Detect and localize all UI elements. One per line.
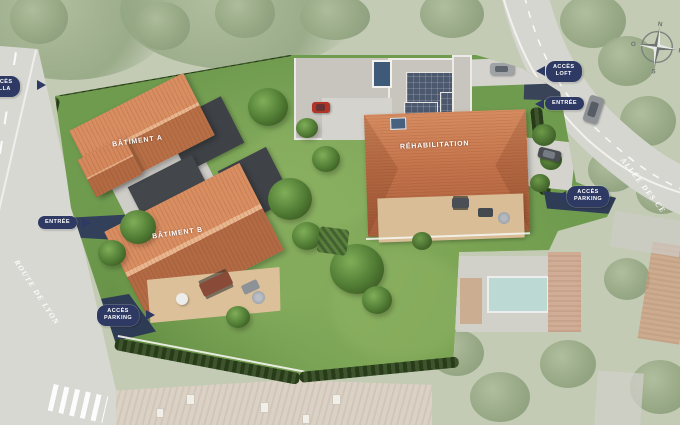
arrow-left-icon — [535, 99, 544, 109]
badge-text: VILLA — [0, 86, 13, 93]
badge-entree-right: ENTRÉE — [545, 97, 584, 110]
chimney — [332, 394, 341, 405]
neighbour-building — [610, 211, 680, 258]
compass-rose: N E S O — [627, 17, 680, 78]
gray-car — [490, 63, 514, 75]
outdoor-table — [452, 198, 469, 208]
badge-text: ACCÈS — [0, 79, 13, 86]
badge-text: ACCÈS — [104, 308, 132, 315]
skylight — [390, 117, 406, 130]
compass-north-label: N — [657, 21, 663, 29]
tree — [362, 286, 392, 314]
compass-star — [634, 24, 680, 71]
outdoor-table — [478, 208, 493, 217]
skylight — [372, 60, 392, 88]
badge-text: ENTRÉE — [552, 100, 577, 107]
neighbour-roof — [548, 252, 581, 332]
car-windows — [495, 66, 508, 73]
badge-acces-villa: ACCÈS VILLA — [0, 76, 20, 97]
badge-text: ENTRÉE — [45, 219, 70, 226]
red-car — [312, 102, 330, 113]
arrow-right-icon — [82, 218, 91, 228]
arrow-left-icon — [557, 191, 566, 201]
car-windows — [587, 101, 600, 118]
tree — [226, 306, 250, 328]
tree — [120, 210, 156, 244]
chimney — [186, 394, 195, 405]
parasol — [252, 291, 265, 304]
arrow-left-icon — [536, 66, 545, 76]
neighbour-pool — [487, 276, 549, 313]
chimney — [260, 402, 269, 413]
neighbour-roof — [638, 241, 680, 344]
loft-flat-roof-east — [452, 55, 472, 119]
car-windows — [542, 150, 556, 159]
arrow-right-icon — [146, 310, 155, 320]
tree — [296, 118, 318, 138]
tree — [268, 178, 312, 220]
badge-text: PARKING — [574, 196, 602, 203]
car-windows — [316, 104, 326, 110]
badge-acces-parking-left: ACCÈS PARKING — [97, 305, 139, 326]
badge-acces-parking-right: ACCÈS PARKING — [567, 186, 609, 207]
garden-patch — [316, 226, 349, 256]
neighbour-roof-large — [116, 380, 432, 425]
neighbour-deck — [460, 278, 482, 324]
badge-text: PARKING — [104, 315, 132, 322]
chimney — [156, 408, 164, 418]
tree — [248, 88, 288, 126]
site-plan: BÂTIMENT A BÂTIMENT B RÉHABILITATION ROU… — [0, 0, 680, 425]
arrow-right-icon — [37, 80, 46, 90]
bush — [532, 124, 556, 146]
badge-acces-loft: ACCÈS LOFT — [546, 61, 582, 82]
neighbour-driveway — [594, 370, 644, 425]
round-table — [176, 293, 188, 305]
bush — [412, 232, 432, 250]
badge-entree-left: ENTRÉE — [38, 216, 77, 229]
compass-west-label: O — [630, 41, 636, 49]
bush — [530, 174, 550, 192]
badge-text: LOFT — [553, 71, 575, 78]
tree — [98, 240, 126, 266]
badge-text: ACCÈS — [574, 189, 602, 196]
tree — [312, 146, 340, 172]
chimney — [302, 414, 310, 424]
parasol — [498, 212, 510, 224]
badge-text: ACCÈS — [553, 64, 575, 71]
